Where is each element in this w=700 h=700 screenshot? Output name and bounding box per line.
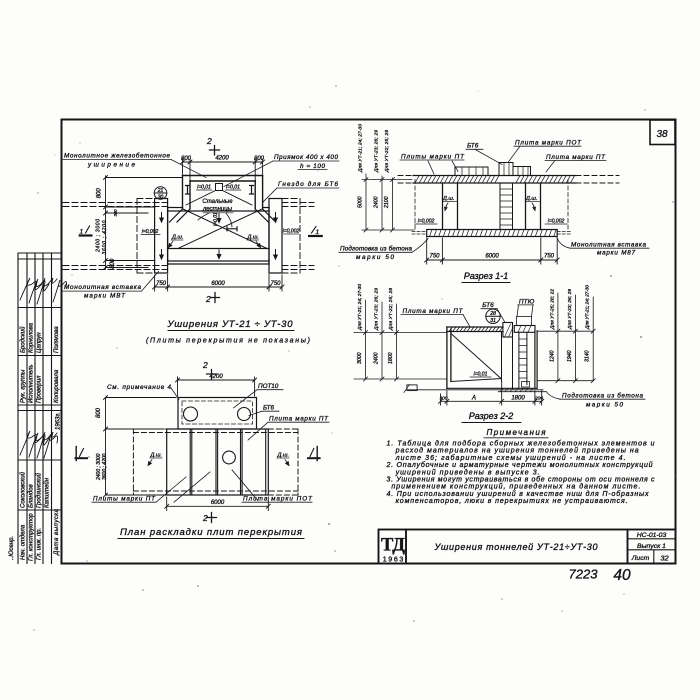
svg-text:Бродский: Бродский xyxy=(20,326,27,353)
svg-text:А: А xyxy=(471,396,476,402)
svg-text:Гродзинский: Гродзинский xyxy=(36,472,43,508)
svg-text:300: 300 xyxy=(113,209,118,217)
svg-text:уширение: уширение xyxy=(87,162,135,169)
svg-text:Д.ш.: Д.ш. xyxy=(171,235,184,241)
svg-text:Для УТ-23; 26; 29: Для УТ-23; 26; 29 xyxy=(374,288,380,331)
svg-text:Плита марки ПТ: Плита марки ПТ xyxy=(403,308,464,315)
svg-text:32: 32 xyxy=(660,554,669,563)
svg-text:Дата выпуска: Дата выпуска xyxy=(54,508,60,556)
svg-text:План раскладки плит перекры: План раскладки плит перекрытия xyxy=(120,527,302,538)
svg-text:марки М87: марки М87 xyxy=(597,250,635,257)
svg-text:Гнездо для БТ6: Гнездо для БТ6 xyxy=(278,180,338,188)
svg-text:Уширения УТ-21 ÷ УТ-30: Уширения УТ-21 ÷ УТ-30 xyxy=(167,319,294,330)
svg-text:расход материалов на уширен: расход материалов на уширения тоннелей п… xyxy=(395,447,639,455)
svg-text:Подготовка из бетона: Подготовка из бетона xyxy=(340,245,412,253)
svg-text:Лист: Лист xyxy=(631,555,650,562)
svg-text:21: 21 xyxy=(157,188,164,194)
svg-text:Плита марки ПТ: Плита марки ПТ xyxy=(546,154,606,161)
svg-text:Д.ш.: Д.ш. xyxy=(525,196,538,202)
svg-text:i=0,002: i=0,002 xyxy=(142,229,159,235)
svg-text:1940: 1940 xyxy=(567,350,573,362)
svg-text:ПОТ10: ПОТ10 xyxy=(258,383,279,390)
svg-text:БТ6: БТ6 xyxy=(467,143,479,150)
svg-text:3600 ; 4200: 3600 ; 4200 xyxy=(102,453,108,480)
svg-text:..Юсенр.: ..Юсенр. xyxy=(9,536,15,560)
svg-text:Для УТ-21; 24; 27-30: Для УТ-21; 24; 27-30 xyxy=(357,284,363,331)
svg-text:1963: 1963 xyxy=(383,557,404,564)
svg-text:4. При использовании уширени: 4. При использовании уширений в качестве… xyxy=(387,490,650,498)
svg-text:1. Таблица для подбора сбор: 1. Таблица для подбора сборных железобет… xyxy=(387,440,655,448)
svg-text:Цапрун: Цапрун xyxy=(37,332,43,353)
svg-text:i=0,01: i=0,01 xyxy=(474,372,488,378)
svg-text:30: 30 xyxy=(158,195,164,201)
svg-text:i=0,01: i=0,01 xyxy=(226,185,240,191)
svg-text:6000: 6000 xyxy=(211,281,225,287)
svg-text:Капштейн: Капштейн xyxy=(44,477,51,508)
svg-text:2: 2 xyxy=(206,136,212,146)
svg-text:Уширения тоннелей УТ-21÷УТ-3: Уширения тоннелей УТ-21÷УТ-30 xyxy=(434,542,598,552)
svg-text:Монолитная вставка: Монолитная вставка xyxy=(64,284,141,291)
svg-text:Приямок 400 х 400: Приямок 400 х 400 xyxy=(274,154,338,161)
svg-text:НС-01-03: НС-01-03 xyxy=(637,532,667,539)
svg-text:Исполнитель: Исполнитель xyxy=(29,365,35,404)
svg-text:Плиты марки ПТ: Плиты марки ПТ xyxy=(93,496,156,503)
svg-text:Разрез 1-1: Разрез 1-1 xyxy=(464,271,509,281)
svg-text:4200: 4200 xyxy=(215,156,229,162)
svg-text:Выпуск 1: Выпуск 1 xyxy=(637,543,666,550)
svg-text:Монолитная вставка: Монолитная вставка xyxy=(571,242,646,249)
svg-text:2400: 2400 xyxy=(374,196,380,209)
svg-text:Для УТ-25; 28; 22: Для УТ-25; 28; 22 xyxy=(549,289,555,330)
svg-text:Подготовка из бетона: Подготовка из бетона xyxy=(562,392,643,400)
svg-text:Полякова: Полякова xyxy=(54,326,60,353)
svg-text:800: 800 xyxy=(181,156,192,162)
svg-text:800: 800 xyxy=(254,156,265,162)
svg-text:Гл. конструктор: Гл. конструктор xyxy=(29,513,35,561)
svg-text:См. примечание 4: См. примечание 4 xyxy=(107,384,171,391)
svg-text:i=0,002: i=0,002 xyxy=(418,219,435,225)
svg-text:2400: 2400 xyxy=(374,352,380,365)
svg-text:1: 1 xyxy=(80,229,84,236)
svg-text:28: 28 xyxy=(489,311,496,317)
svg-text:1963г.: 1963г. xyxy=(56,412,62,430)
svg-text:Д.ш.: Д.ш. xyxy=(150,453,163,459)
svg-text:38: 38 xyxy=(656,129,668,140)
svg-text:2: 2 xyxy=(205,294,211,304)
svg-text:(Плиты перекрытия не показа: (Плиты перекрытия не показаны) xyxy=(146,338,310,345)
svg-text:Гл. инж. пр.: Гл. инж. пр. xyxy=(37,528,43,560)
svg-text:БТ6: БТ6 xyxy=(482,302,494,309)
svg-text:1: 1 xyxy=(316,229,320,236)
svg-text:7223: 7223 xyxy=(569,567,599,582)
svg-text:Для УТ-23; 26; 29: Для УТ-23; 26; 29 xyxy=(567,289,573,330)
svg-text:марки МВТ: марки МВТ xyxy=(84,292,126,299)
svg-text:Бландов: Бландов xyxy=(29,484,35,508)
svg-text:750: 750 xyxy=(429,254,440,260)
svg-text:Д.ш.: Д.ш. xyxy=(247,235,260,241)
svg-text:3600 ; 4200: 3600 ; 4200 xyxy=(102,220,108,254)
svg-text:750: 750 xyxy=(270,281,281,287)
svg-text:Плиты марки ПТ: Плиты марки ПТ xyxy=(401,153,465,160)
svg-text:ПТЮ: ПТЮ xyxy=(519,298,535,305)
svg-text:40: 40 xyxy=(613,567,631,584)
svg-text:6000: 6000 xyxy=(211,500,225,506)
svg-text:5000: 5000 xyxy=(358,196,364,208)
svg-text:Для УТ-21; 24; 27-30: Для УТ-21; 24; 27-30 xyxy=(585,285,591,330)
svg-text:листе 36; габаритные схемы: листе 36; габаритные схемы уширений - на… xyxy=(395,454,626,462)
svg-text:Рук. группы: Рук. группы xyxy=(21,369,27,403)
svg-text:применением конструкций, при: применением конструкций, приведенных на … xyxy=(391,483,640,491)
svg-text:Нач. отдела: Нач. отдела xyxy=(21,524,27,560)
svg-text:Плита марки ПОТ: Плита марки ПОТ xyxy=(243,496,313,503)
svg-text:800: 800 xyxy=(96,188,102,199)
svg-text:Соколовский: Соколовский xyxy=(20,471,27,508)
svg-text:300: 300 xyxy=(439,396,447,402)
svg-text:3140: 3140 xyxy=(585,350,591,362)
svg-text:2. Опалубочные и арматурные: 2. Опалубочные и арматурные чертежи моно… xyxy=(386,461,653,469)
svg-text:31: 31 xyxy=(490,318,496,324)
svg-text:i=0,002: i=0,002 xyxy=(548,219,565,225)
svg-text:3. Уширения могут устраивать: 3. Уширения могут устраиваться в обе сто… xyxy=(387,476,656,484)
svg-text:1240: 1240 xyxy=(549,350,555,362)
svg-text:компенсаторов, люки в перек: компенсаторов, люки в перекрытиях не уст… xyxy=(396,498,628,505)
svg-text:h = 100: h = 100 xyxy=(300,163,325,170)
svg-text:уширений приведены в выпуск: уширений приведены в выпуске 3. xyxy=(395,468,540,476)
svg-text:3000: 3000 xyxy=(357,352,363,364)
svg-text:марки 50: марки 50 xyxy=(586,401,623,408)
svg-text:Копировала: Копировала xyxy=(54,369,60,403)
svg-text:Разрез 2-2: Разрез 2-2 xyxy=(469,411,514,421)
svg-text:750: 750 xyxy=(544,254,555,260)
svg-text:марки 50: марки 50 xyxy=(356,254,394,261)
svg-text:2400 ; 3000: 2400 ; 3000 xyxy=(96,219,102,253)
svg-text:Корнилова: Корнилова xyxy=(29,322,35,353)
svg-text:Д.ш.: Д.ш. xyxy=(277,453,290,459)
svg-text:Проверил: Проверил xyxy=(37,375,43,403)
svg-text:6000: 6000 xyxy=(485,254,499,260)
svg-text:Д.ш.: Д.ш. xyxy=(442,196,455,202)
svg-text:Примечания: Примечания xyxy=(487,428,547,437)
svg-text:750: 750 xyxy=(156,281,167,287)
svg-text:1800: 1800 xyxy=(511,396,525,402)
svg-text:4200: 4200 xyxy=(209,374,223,380)
svg-text:Стальные: Стальные xyxy=(202,199,233,205)
svg-text:Для УТ-22; 25; 28: Для УТ-22; 25; 28 xyxy=(384,130,390,173)
svg-text:Плита марки ПТ: Плита марки ПТ xyxy=(269,416,329,423)
svg-text:800: 800 xyxy=(110,258,116,269)
svg-text:Для УТ-21; 24; 27-30: Для УТ-21; 24; 27-30 xyxy=(358,124,364,173)
svg-text:Для УТ-23; 26; 29: Для УТ-23; 26; 29 xyxy=(374,130,380,173)
svg-text:Плита марки ПОТ: Плита марки ПОТ xyxy=(515,140,582,147)
svg-text:800: 800 xyxy=(96,407,102,418)
svg-text:i=0,002: i=0,002 xyxy=(283,229,300,235)
svg-text:i=0,01: i=0,01 xyxy=(197,185,211,191)
svg-text:2100: 2100 xyxy=(384,196,390,209)
svg-text:2: 2 xyxy=(202,360,208,370)
svg-text:200: 200 xyxy=(534,396,543,402)
svg-text:Для УТ-22; 25; 28: Для УТ-22; 25; 28 xyxy=(388,288,394,331)
svg-text:Монолитное железобетонное: Монолитное железобетонное xyxy=(64,152,170,160)
svg-text:БТ6: БТ6 xyxy=(263,405,275,412)
svg-text:1800: 1800 xyxy=(388,352,394,364)
svg-text:ТД: ТД xyxy=(381,535,405,556)
